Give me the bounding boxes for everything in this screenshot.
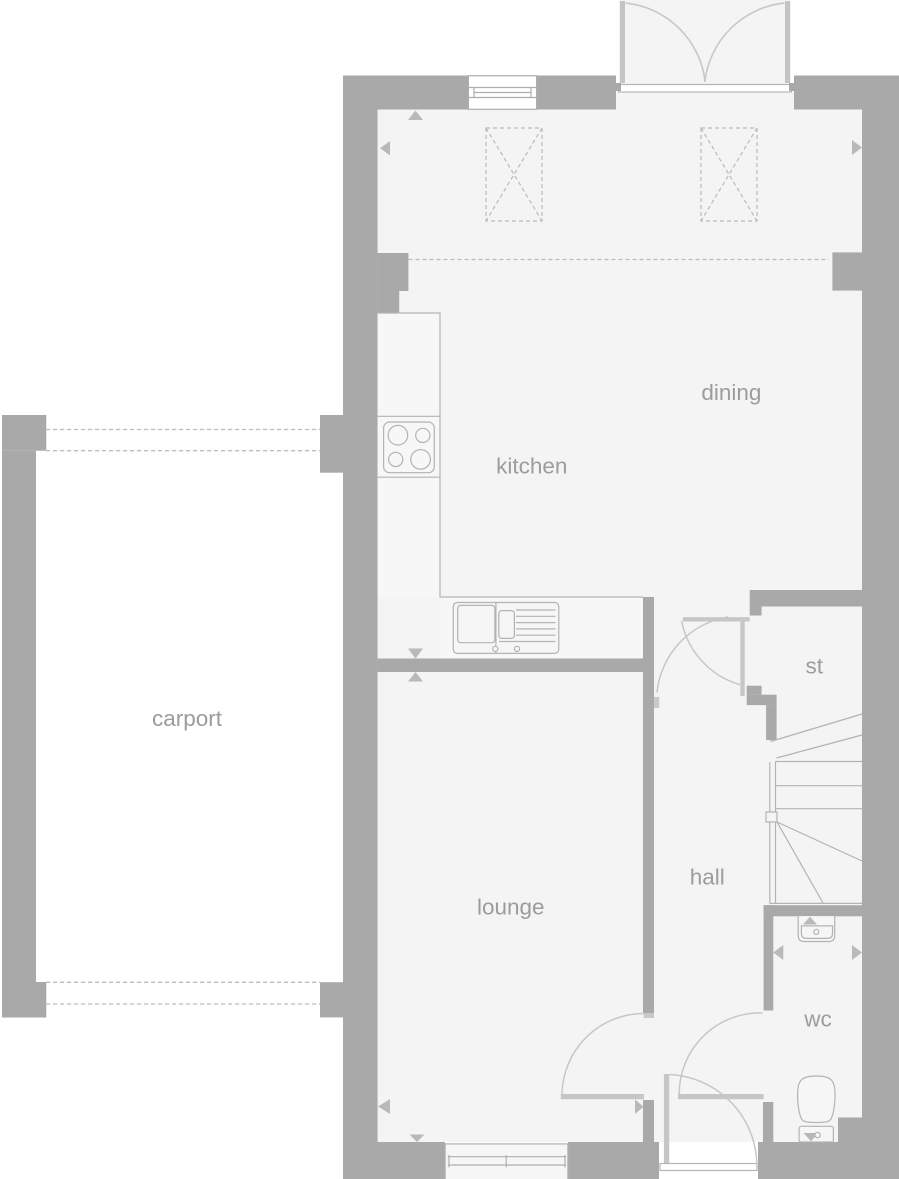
svg-text:wc: wc <box>803 1007 832 1032</box>
svg-text:carport: carport <box>152 706 223 731</box>
svg-text:hall: hall <box>690 865 725 890</box>
svg-text:st: st <box>806 654 824 679</box>
svg-text:kitchen: kitchen <box>496 453 567 478</box>
svg-text:lounge: lounge <box>477 894 545 919</box>
svg-text:dining: dining <box>701 380 761 405</box>
